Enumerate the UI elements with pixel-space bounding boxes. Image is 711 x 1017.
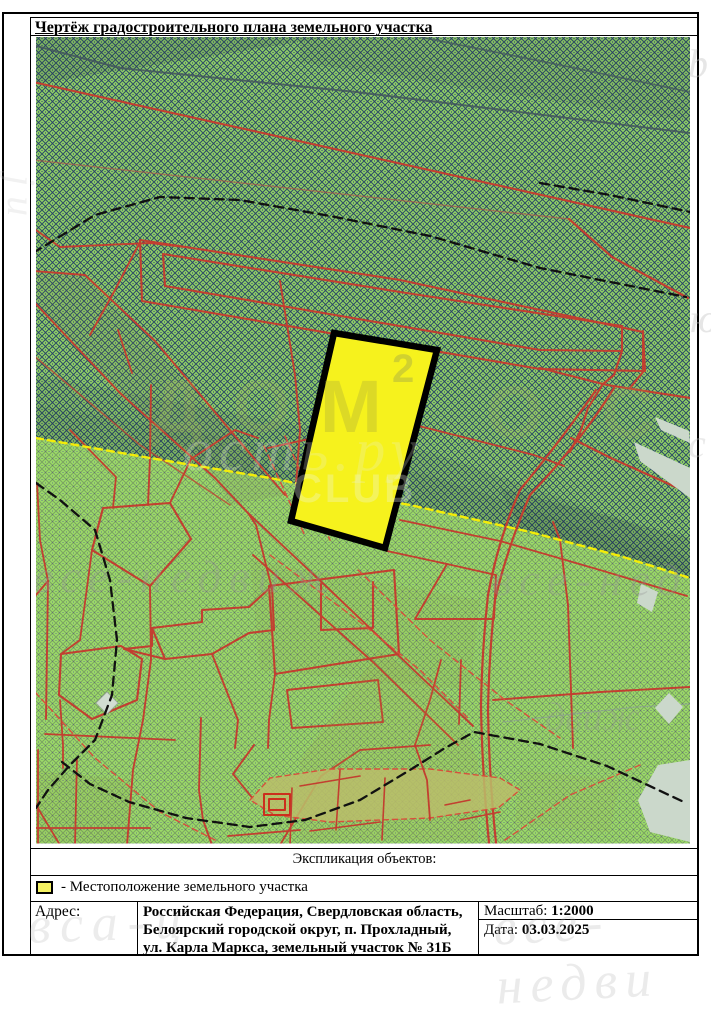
svg-text:движ: движ bbox=[545, 694, 640, 739]
svg-text:ОС: ОС bbox=[486, 371, 697, 454]
svg-text:все-недв: все-недв bbox=[492, 554, 697, 605]
svg-text:все-недвиж: все-недвиж bbox=[33, 551, 339, 602]
svg-text:CLUB: CLUB bbox=[293, 467, 416, 511]
svg-text:2: 2 bbox=[392, 347, 414, 391]
